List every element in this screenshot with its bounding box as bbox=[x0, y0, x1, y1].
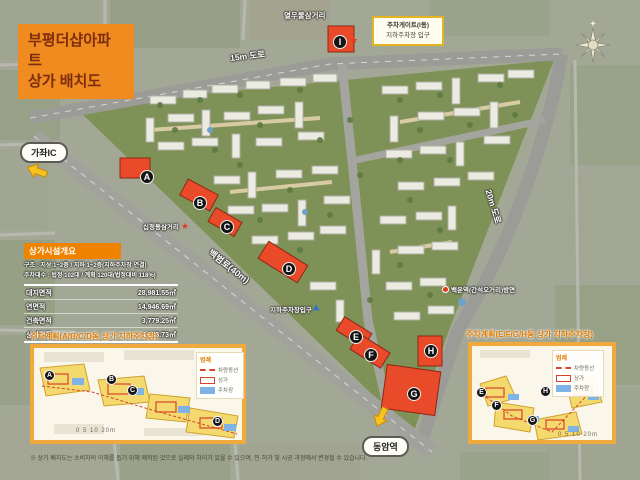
legend-title: 범례 bbox=[556, 353, 600, 362]
building-letter: B bbox=[109, 376, 114, 383]
poster-title-line1: 부평더샵아파트 bbox=[28, 31, 124, 72]
overview-panel: 상가시설개요 구조 : 지상 1~2층 / 지하 1~2층(지하주차장 연결) … bbox=[24, 243, 178, 343]
route-dash-icon bbox=[200, 369, 215, 371]
row-value: 28,981.55㎡ bbox=[138, 288, 176, 298]
gate-callout: 주차게이트(I동) 지하주차장 입구 bbox=[372, 16, 444, 46]
building-marker-c: C bbox=[220, 220, 234, 234]
poi-left-intersection: 십정동삼거리 ★ bbox=[143, 221, 189, 231]
legend-row: 주차장 bbox=[200, 386, 240, 394]
shop-rect-icon bbox=[556, 375, 571, 382]
poi-parking-entrance: 지하주차장입구 ▶ bbox=[270, 304, 320, 314]
building-letter: B bbox=[197, 199, 204, 208]
inset-right-marker-g: G bbox=[527, 415, 538, 426]
legend-row: 상가 bbox=[200, 376, 240, 384]
site-plan-poster: ✦ 부평더샵아파트 상가 배치도 가좌IC 동암역 주차게이트(I동) 지하주차… bbox=[0, 0, 640, 480]
legend-label: 주차장 bbox=[218, 386, 233, 394]
inset-left-marker-b: B bbox=[106, 374, 117, 385]
building-letter: C bbox=[130, 387, 135, 394]
poi-parking-entrance-label: 지하주차장입구 bbox=[270, 304, 312, 314]
row-label: 건축면적 bbox=[26, 316, 52, 326]
poster-title: 부평더샵아파트 상가 배치도 bbox=[18, 24, 134, 99]
legend-label: 차량동선 bbox=[218, 366, 238, 374]
route-dash-icon bbox=[556, 367, 571, 369]
building-marker-i: I bbox=[333, 35, 347, 49]
inset-right-legend: 범례 차량동선 상가 주차장 bbox=[552, 350, 604, 397]
gate-callout-line1: 주차게이트(I동) bbox=[378, 21, 438, 31]
label-top-intersection: 열우물삼거리 bbox=[284, 10, 325, 21]
table-row: 연면적 14,946.69㎡ bbox=[24, 300, 178, 314]
legend-label: 상가 bbox=[218, 376, 228, 384]
direction-pill-dongam-station: 동암역 bbox=[362, 436, 409, 457]
building-marker-b: B bbox=[193, 196, 207, 210]
building-letter: I bbox=[339, 38, 342, 47]
building-marker-e: E bbox=[349, 330, 363, 344]
legend-row: 차량동선 bbox=[556, 364, 600, 372]
building-letter: H bbox=[543, 388, 548, 395]
poi-left-intersection-label: 십정동삼거리 bbox=[143, 221, 179, 231]
building-letter: F bbox=[368, 351, 374, 360]
building-letter: G bbox=[410, 390, 417, 399]
inset-left-marker-d: D bbox=[212, 416, 223, 427]
inset-right-marker-f: F bbox=[491, 400, 502, 411]
row-label: 대지면적 bbox=[26, 288, 52, 298]
legend-label: 주차장 bbox=[574, 384, 589, 392]
inset-left-marker-a: A bbox=[44, 370, 55, 381]
building-letter: A bbox=[47, 372, 52, 379]
overview-note-parking: 주차대수 : 법정 102대 / 계획 120대(법정대비 118%) bbox=[24, 272, 178, 282]
shop-rect-icon bbox=[200, 377, 215, 384]
poster-title-line2: 상가 배치도 bbox=[28, 72, 124, 92]
inset-right-title: 주차계획(E/F/G/H동 상가 지하주차장) bbox=[466, 329, 593, 340]
table-row: 건축면적 3,779.25㎡ bbox=[24, 314, 178, 328]
building-marker-g: G bbox=[407, 387, 421, 401]
building-letter: F bbox=[494, 402, 498, 409]
table-row: 대지면적 28,981.55㎡ bbox=[24, 286, 178, 300]
building-letter: D bbox=[286, 265, 293, 274]
gate-callout-line2: 지하주차장 입구 bbox=[378, 31, 438, 41]
parking-rect-icon bbox=[200, 387, 215, 394]
building-letter: C bbox=[224, 223, 231, 232]
inset-left-legend: 범례 차량동선 상가 주차장 bbox=[196, 352, 244, 399]
disclaimer-footnote: ※ 상기 배치도는 소비자의 이해를 돕기 위해 제작된 것으로 실제와 차이가… bbox=[30, 453, 367, 462]
inset-right-marker-h: H bbox=[540, 386, 551, 397]
flag-icon: ★ bbox=[181, 222, 189, 231]
row-label: 연면적 bbox=[26, 302, 45, 312]
inset-left-scale: 0 5 10 20m bbox=[76, 428, 116, 434]
overview-note-structure: 구조 : 지상 1~2층 / 지하 1~2층(지하주차장 연결) bbox=[24, 262, 178, 272]
svg-text:✦: ✦ bbox=[590, 20, 596, 28]
inset-left-marker-c: C bbox=[127, 385, 138, 396]
overview-header: 상가시설개요 bbox=[24, 243, 121, 259]
legend-title: 범례 bbox=[200, 355, 240, 364]
building-letter: D bbox=[215, 418, 220, 425]
building-marker-f: F bbox=[364, 348, 378, 362]
inset-right-scale: 0 5 10 20m bbox=[558, 432, 598, 438]
inset-left-title: 주차계획(A/B/C/D동 상가 지하주차장) bbox=[30, 331, 158, 342]
star-icon: ★ bbox=[350, 36, 358, 45]
building-letter: E bbox=[479, 389, 484, 396]
legend-label: 차량동선 bbox=[574, 364, 594, 372]
poi-station-direction: 백운역(간석오거리)방면 bbox=[442, 284, 515, 294]
pin-icon bbox=[442, 286, 449, 293]
row-value: 3,779.25㎡ bbox=[142, 316, 176, 326]
legend-row: 상가 bbox=[556, 374, 600, 382]
legend-row: 차량동선 bbox=[200, 366, 240, 374]
building-marker-h: H bbox=[424, 344, 438, 358]
overview-notes: 구조 : 지상 1~2층 / 지하 1~2층(지하주차장 연결) 주차대수 : … bbox=[24, 262, 178, 281]
building-letter: A bbox=[144, 173, 151, 182]
legend-label: 상가 bbox=[574, 374, 584, 382]
row-value: 14,946.69㎡ bbox=[138, 302, 176, 312]
inset-right-marker-e: E bbox=[476, 387, 487, 398]
building-letter: H bbox=[428, 347, 435, 356]
building-marker-a: A bbox=[140, 170, 154, 184]
building-marker-d: D bbox=[282, 262, 296, 276]
parking-rect-icon bbox=[556, 385, 571, 392]
building-letter: E bbox=[353, 333, 359, 342]
legend-row: 주차장 bbox=[556, 384, 600, 392]
building-letter: G bbox=[530, 417, 535, 424]
compass-icon: ✦ bbox=[572, 18, 614, 66]
poi-station-direction-label: 백운역(간석오거리)방면 bbox=[451, 284, 515, 294]
